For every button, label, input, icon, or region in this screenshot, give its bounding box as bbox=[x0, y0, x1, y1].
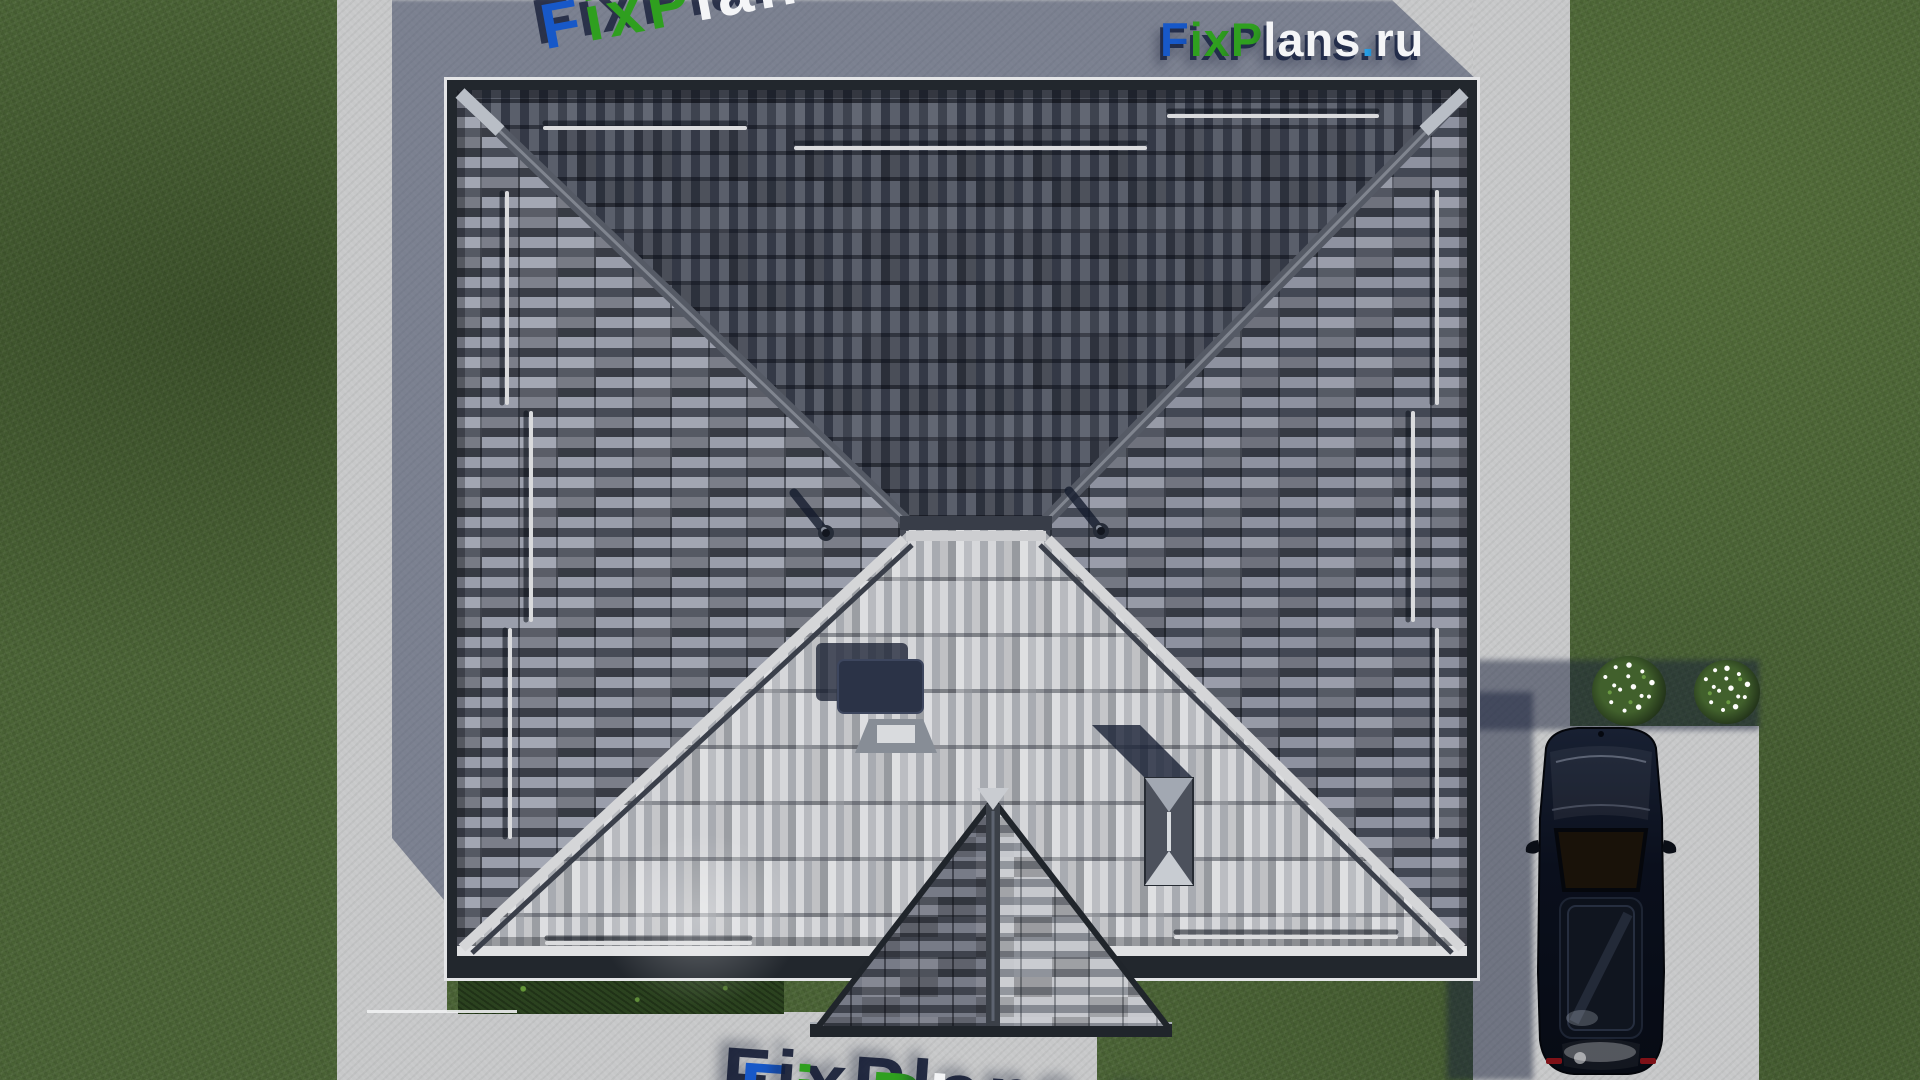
car-emblem bbox=[1598, 731, 1604, 737]
taillight-right bbox=[1640, 1058, 1656, 1064]
windshield bbox=[1556, 830, 1646, 890]
black-suv-car bbox=[1516, 722, 1686, 1080]
flower-bush-left bbox=[1592, 656, 1666, 726]
side-mirror-left bbox=[1526, 840, 1540, 854]
side-mirror-right bbox=[1662, 840, 1676, 854]
aerial-render-scene: FixPlans.ru FixPlans.ru FixPlans.ru bbox=[0, 0, 1920, 1080]
taillight-left bbox=[1546, 1058, 1562, 1064]
logo-segment: ru bbox=[1131, 1073, 1227, 1080]
flower-bush-right bbox=[1694, 660, 1760, 724]
car-hood bbox=[1550, 746, 1652, 820]
logo-segment: . bbox=[1104, 1071, 1138, 1080]
hip-roof bbox=[444, 77, 1480, 1039]
